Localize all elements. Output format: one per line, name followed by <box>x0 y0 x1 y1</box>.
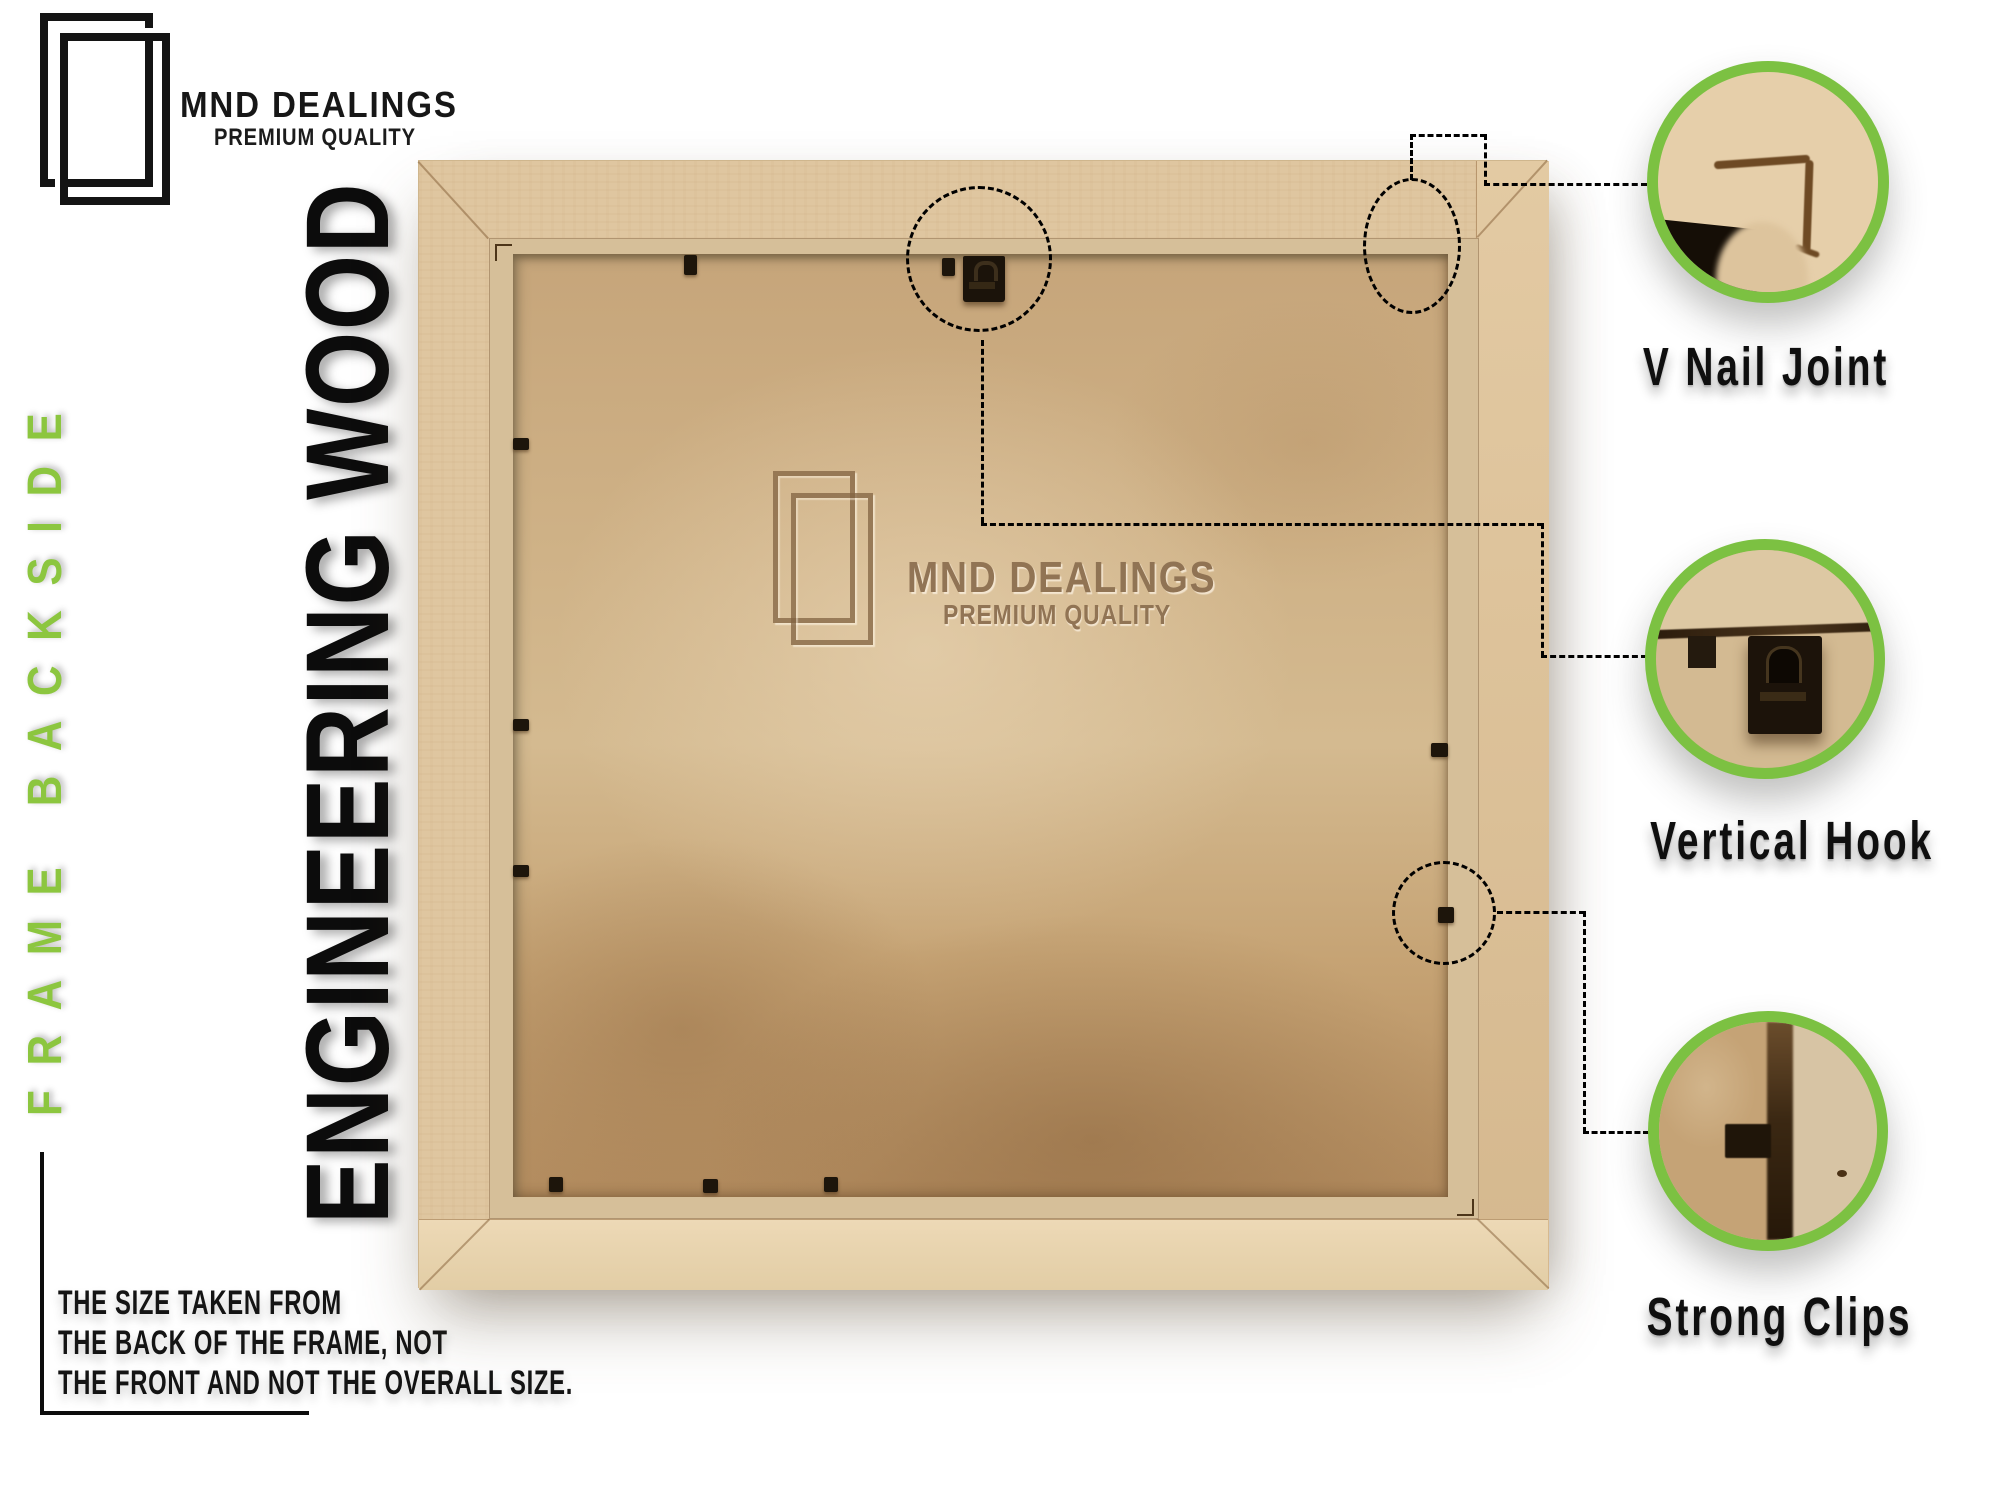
backing-clip <box>684 255 697 275</box>
v-nail-mark <box>495 244 512 261</box>
connector-line <box>1484 134 1487 186</box>
connector-line <box>1410 134 1486 137</box>
backing-clip <box>1431 743 1448 757</box>
connector-line <box>981 523 1543 526</box>
brand-tagline: PREMIUM QUALITY <box>214 124 416 152</box>
focus-circle-hook <box>906 186 1052 332</box>
strong-clips-photo <box>1648 1011 1888 1251</box>
frame-logo-icon <box>60 33 170 205</box>
note-line: THE FRONT AND NOT THE OVERALL SIZE. <box>58 1364 573 1403</box>
v-nail-groove <box>1714 155 1810 170</box>
frame-side-face <box>1476 161 1549 1289</box>
v-nail-joint-photo <box>1647 61 1889 303</box>
v-nail-groove <box>1802 160 1813 252</box>
engineering-wood-label: ENGINEERING WOOD <box>295 182 401 1224</box>
hook-detail <box>1748 636 1822 734</box>
note-line: THE SIZE TAKEN FROM <box>58 1284 342 1323</box>
connector-line <box>1410 134 1413 180</box>
board-edge <box>1656 550 1874 630</box>
focus-circle-corner <box>1363 178 1461 314</box>
backing-clip <box>549 1177 563 1192</box>
connector-line <box>1541 523 1544 657</box>
product-infographic: MND DEALINGS PREMIUM QUALITY FRAME BACKS… <box>0 0 2000 1500</box>
connector-line <box>1583 911 1586 1133</box>
connector-line <box>1484 183 1647 186</box>
brand-name: MND DEALINGS <box>180 84 458 126</box>
frame-backside-label: FRAME BACKSIDE <box>22 389 70 1116</box>
connector-line <box>1497 911 1585 914</box>
callout-label-strong-clips: Strong Clips <box>1595 1286 1935 1348</box>
backing-clip <box>703 1179 718 1193</box>
callout-label-v-nail-joint: V Nail Joint <box>1595 336 1935 398</box>
v-nail-mark <box>1457 1199 1474 1216</box>
connector-line <box>981 340 984 523</box>
connector-line <box>1541 655 1647 658</box>
note-line: THE BACK OF THE FRAME, NOT <box>58 1324 448 1363</box>
clip-detail <box>1725 1124 1771 1158</box>
vertical-hook-photo <box>1645 539 1885 779</box>
callout-label-vertical-hook: Vertical Hook <box>1595 810 1935 872</box>
connector-line <box>1583 1131 1649 1134</box>
backing-clip <box>513 438 529 450</box>
watermark-logo-icon <box>791 493 873 645</box>
backing-clip <box>824 1177 838 1192</box>
focus-circle-clip <box>1392 861 1496 965</box>
watermark-name: MND DEALINGS <box>907 553 1216 603</box>
backing-clip <box>513 865 529 877</box>
frame-bottom-face <box>419 1219 1548 1290</box>
backing-clip <box>513 719 529 731</box>
wood-speck <box>1837 1170 1847 1177</box>
clip-detail <box>1688 636 1716 668</box>
watermark-tagline: PREMIUM QUALITY <box>943 599 1171 631</box>
